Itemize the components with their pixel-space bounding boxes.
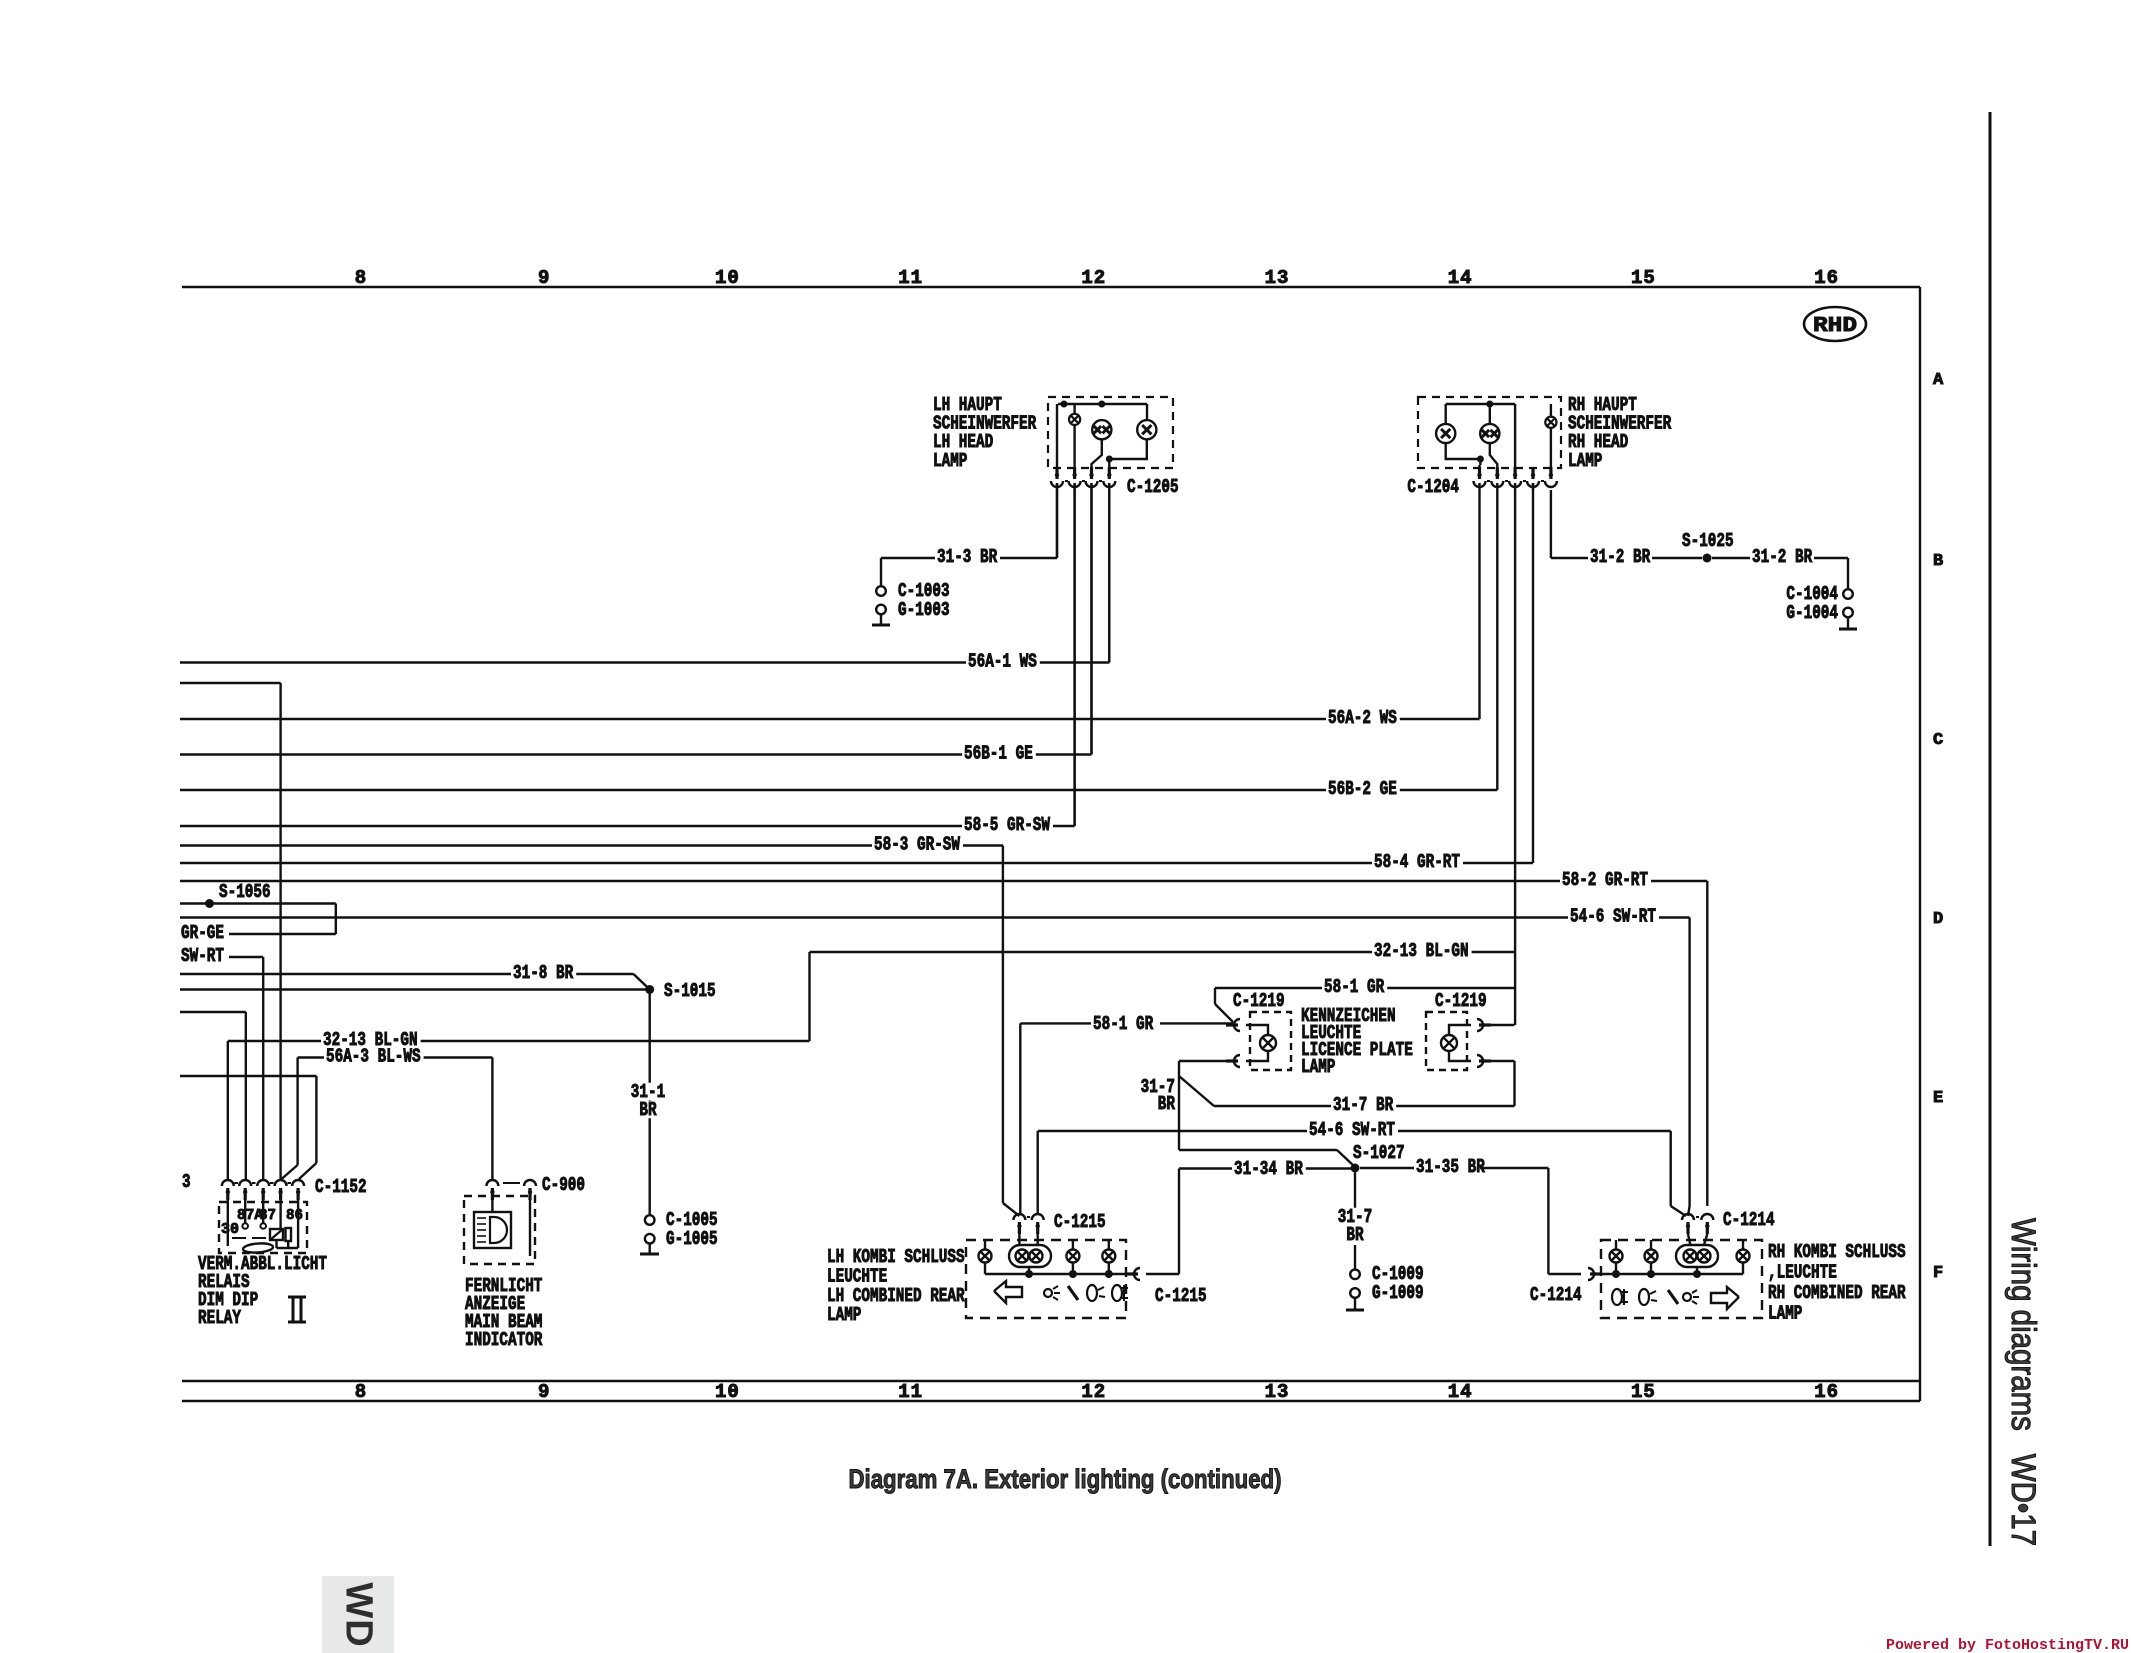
svg-text:GR-GE: GR-GE xyxy=(181,922,224,944)
svg-text:58-3 GR-SW: 58-3 GR-SW xyxy=(874,834,960,856)
svg-text:RH COMBINED REAR: RH COMBINED REAR xyxy=(1768,1282,1906,1304)
svg-text:87: 87 xyxy=(259,1207,276,1224)
svg-text:C-1215: C-1215 xyxy=(1155,1285,1207,1307)
svg-text:56B-1 GE: 56B-1 GE xyxy=(964,743,1033,765)
svg-text:Diagram 7A. Exterior lighting: Diagram 7A. Exterior lighting (continued… xyxy=(849,1464,1282,1494)
svg-text:RELAY: RELAY xyxy=(198,1307,241,1329)
svg-text:LAMP: LAMP xyxy=(1768,1303,1802,1325)
svg-text:58-2 GR-RT: 58-2 GR-RT xyxy=(1562,869,1648,891)
svg-text:12: 12 xyxy=(1081,267,1106,289)
svg-text:BR: BR xyxy=(1158,1093,1176,1115)
svg-text:12: 12 xyxy=(1081,1381,1106,1403)
svg-text:31-8 BR: 31-8 BR xyxy=(513,962,574,984)
svg-text:Wiring diagrams WD•17: Wiring diagrams WD•17 xyxy=(2004,1218,2042,1546)
svg-text:13: 13 xyxy=(1265,267,1290,289)
svg-text:14: 14 xyxy=(1448,267,1473,289)
svg-text:C-1219: C-1219 xyxy=(1435,990,1487,1012)
svg-text:C-1204: C-1204 xyxy=(1407,476,1459,498)
svg-text:F: F xyxy=(1933,1264,1943,1283)
svg-text:LAMP: LAMP xyxy=(827,1304,861,1326)
svg-text:58-5 GR-SW: 58-5 GR-SW xyxy=(964,814,1050,836)
svg-text:54-6 SW-RT: 54-6 SW-RT xyxy=(1309,1119,1395,1141)
svg-text:15: 15 xyxy=(1631,1381,1656,1403)
svg-text:16: 16 xyxy=(1814,267,1839,289)
svg-text:C-1205: C-1205 xyxy=(1127,476,1179,498)
svg-text:C-1215: C-1215 xyxy=(1054,1211,1106,1233)
svg-text:31-2 BR: 31-2 BR xyxy=(1752,546,1813,568)
svg-text:31-2 BR: 31-2 BR xyxy=(1590,546,1651,568)
svg-text:11: 11 xyxy=(898,1381,923,1403)
svg-text:A: A xyxy=(1933,371,1944,390)
svg-text:G-1009: G-1009 xyxy=(1372,1282,1424,1304)
svg-text:G-1003: G-1003 xyxy=(898,599,950,621)
svg-text:G-1005: G-1005 xyxy=(666,1228,718,1250)
svg-text:BR: BR xyxy=(639,1099,657,1121)
svg-text:S-1056: S-1056 xyxy=(219,881,271,903)
svg-text:B: B xyxy=(1933,552,1943,571)
svg-text:13: 13 xyxy=(1265,1381,1290,1403)
svg-text:SW-RT: SW-RT xyxy=(181,945,224,967)
svg-text:31-35 BR: 31-35 BR xyxy=(1416,1156,1485,1178)
svg-text:S-1027: S-1027 xyxy=(1353,1142,1405,1164)
svg-text:S-1025: S-1025 xyxy=(1682,530,1734,552)
svg-text:31-34 BR: 31-34 BR xyxy=(1234,1158,1303,1180)
svg-text:56B-2 GE: 56B-2 GE xyxy=(1328,778,1397,800)
svg-text:10: 10 xyxy=(715,267,740,289)
svg-text:E: E xyxy=(1933,1089,1943,1108)
svg-text:14: 14 xyxy=(1448,1381,1473,1403)
svg-text:RHD: RHD xyxy=(1813,315,1857,338)
svg-text:C: C xyxy=(1933,731,1943,750)
svg-text:31-3 BR: 31-3 BR xyxy=(937,546,998,568)
svg-text:BR: BR xyxy=(1346,1224,1364,1246)
svg-text:56A-1 WS: 56A-1 WS xyxy=(968,651,1037,673)
svg-text:LAMP: LAMP xyxy=(1301,1056,1335,1078)
svg-text:D: D xyxy=(1933,910,1943,929)
svg-text:LAMP: LAMP xyxy=(1568,450,1602,472)
svg-text:56A-3 BL-WS: 56A-3 BL-WS xyxy=(326,1046,421,1068)
svg-text:32-13 BL-GN: 32-13 BL-GN xyxy=(1374,940,1469,962)
svg-text:11: 11 xyxy=(898,267,923,289)
svg-text:9: 9 xyxy=(538,1381,550,1403)
svg-text:31-7 BR: 31-7 BR xyxy=(1333,1094,1394,1116)
svg-text:15: 15 xyxy=(1631,267,1656,289)
svg-text:58-1 GR: 58-1 GR xyxy=(1324,976,1385,998)
svg-text:C-1214: C-1214 xyxy=(1723,1209,1775,1231)
svg-text:INDICATOR: INDICATOR xyxy=(465,1329,543,1351)
svg-text:58-1 GR: 58-1 GR xyxy=(1093,1013,1154,1035)
svg-text:58-4 GR-RT: 58-4 GR-RT xyxy=(1374,851,1460,873)
svg-text:3: 3 xyxy=(182,1171,191,1193)
svg-text:LAMP: LAMP xyxy=(933,450,967,472)
svg-text:54-6 SW-RT: 54-6 SW-RT xyxy=(1570,906,1656,928)
svg-text:G-1004: G-1004 xyxy=(1786,602,1838,624)
svg-text:8: 8 xyxy=(355,267,367,289)
svg-text:,LEUCHTE: ,LEUCHTE xyxy=(1768,1262,1837,1284)
svg-text:C-1219: C-1219 xyxy=(1233,990,1285,1012)
svg-text:S-1015: S-1015 xyxy=(664,980,716,1002)
svg-text:8: 8 xyxy=(355,1381,367,1403)
svg-text:56A-2 WS: 56A-2 WS xyxy=(1328,707,1397,729)
svg-text:9: 9 xyxy=(538,267,550,289)
svg-text:10: 10 xyxy=(715,1381,740,1403)
svg-text:86: 86 xyxy=(286,1207,303,1224)
svg-text:C-900: C-900 xyxy=(542,1174,585,1196)
svg-text:C-1152: C-1152 xyxy=(315,1176,367,1198)
svg-text:16: 16 xyxy=(1814,1381,1839,1403)
svg-text:C-1214: C-1214 xyxy=(1530,1284,1582,1306)
svg-text:RH KOMBI SCHLUSS: RH KOMBI SCHLUSS xyxy=(1768,1241,1906,1263)
